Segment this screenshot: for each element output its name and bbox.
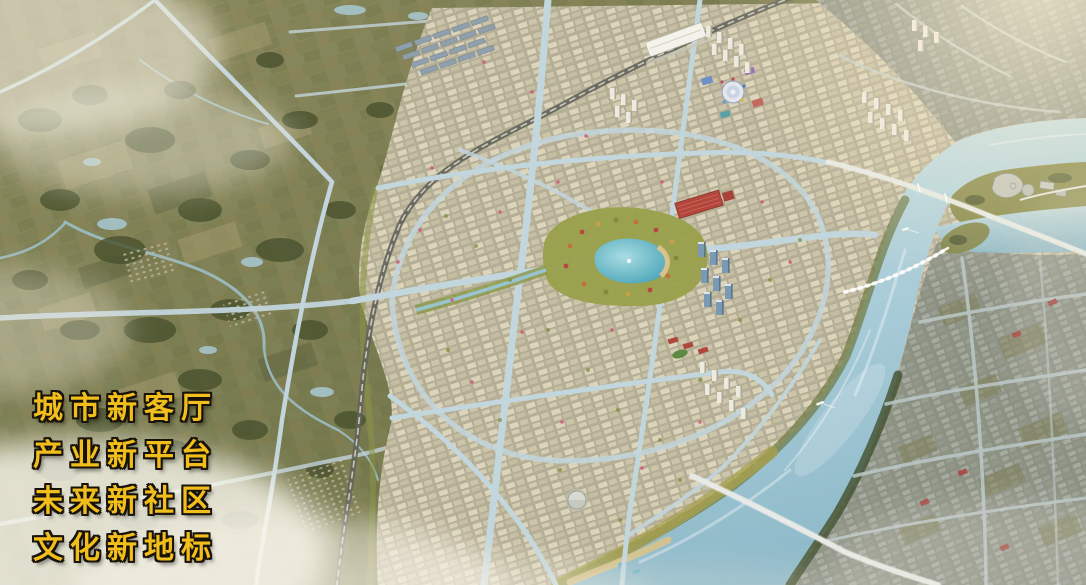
- slogan-line-1: 城市新客厅: [33, 386, 218, 433]
- slogan-line-3: 未来新社区: [33, 479, 218, 526]
- slogan-overlay: 城市新客厅 产业新平台 未来新社区 文化新地标: [33, 386, 218, 572]
- aerial-rendering: 城市新客厅 产业新平台 未来新社区 文化新地标: [0, 0, 1086, 585]
- slogan-line-4: 文化新地标: [33, 526, 218, 573]
- slogan-line-2: 产业新平台: [33, 433, 218, 480]
